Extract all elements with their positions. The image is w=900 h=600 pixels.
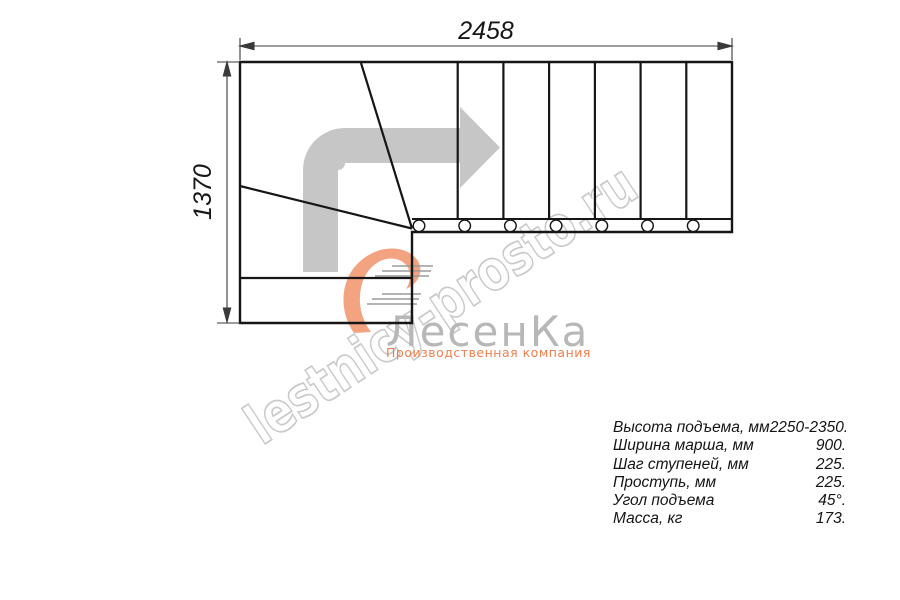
spec-row-step-pitch: Шаг ступеней, мм 225. bbox=[613, 456, 846, 474]
spec-row-mass: Масса, кг 173. bbox=[613, 510, 846, 528]
spec-label: Ширина марша, мм bbox=[613, 437, 754, 455]
specs-table: Высота подъема, мм 2250-2350. Ширина мар… bbox=[613, 419, 846, 529]
spec-label: Шаг ступеней, мм bbox=[613, 456, 749, 474]
spec-value: 173. bbox=[816, 510, 846, 528]
arrowhead-down-icon bbox=[223, 308, 230, 322]
height-dimension-label: 1370 bbox=[189, 164, 217, 220]
spec-value: 225. bbox=[816, 474, 846, 492]
spec-row-flight-width: Ширина марша, мм 900. bbox=[613, 437, 846, 455]
arrowhead-right-icon bbox=[718, 42, 732, 49]
spec-label: Проступь, мм bbox=[613, 474, 716, 492]
spec-row-height: Высота подъема, мм 2250-2350. bbox=[613, 419, 846, 437]
spec-label: Угол подъема bbox=[613, 492, 714, 510]
stair-plan-page: lestnicy-prosto.ru ЛесенКа Производствен… bbox=[0, 0, 900, 600]
spec-value: 900. bbox=[816, 437, 846, 455]
arrowhead-left-icon bbox=[240, 42, 254, 49]
spec-value: 225. bbox=[816, 456, 846, 474]
watermark-text: lestnicy-prosto.ru bbox=[234, 152, 649, 457]
spec-value: 2250-2350. bbox=[770, 419, 848, 437]
spec-row-angle: Угол подъема 45°. bbox=[613, 492, 846, 510]
width-dimension-label: 2458 bbox=[457, 17, 514, 45]
baluster-circles bbox=[413, 220, 699, 232]
spec-label: Масса, кг bbox=[613, 510, 682, 528]
logo-tagline: Производственная компания bbox=[386, 345, 591, 360]
spec-row-tread: Проступь, мм 225. bbox=[613, 474, 846, 492]
spec-label: Высота подъема, мм bbox=[613, 419, 770, 437]
arrowhead-up-icon bbox=[223, 62, 230, 76]
spec-value: 45°. bbox=[818, 492, 846, 510]
